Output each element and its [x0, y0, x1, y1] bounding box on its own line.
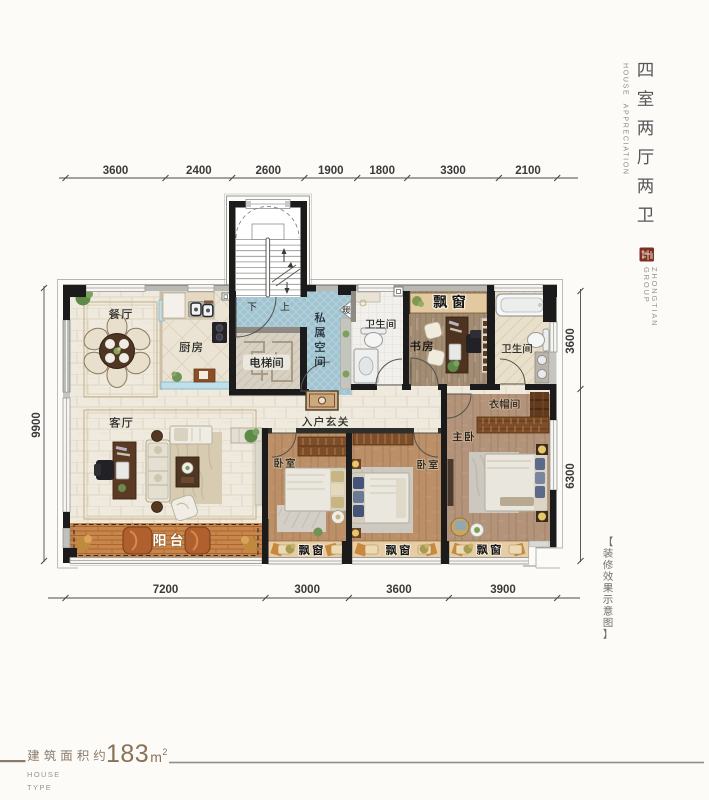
svg-text:2100: 2100	[515, 165, 541, 177]
svg-text:3600: 3600	[565, 328, 577, 354]
svg-text:HOUSE: HOUSE	[27, 770, 61, 779]
svg-text:3300: 3300	[440, 165, 466, 177]
svg-text:TYPE: TYPE	[27, 783, 52, 792]
svg-text:3900: 3900	[490, 584, 516, 596]
svg-text:3000: 3000	[294, 584, 320, 596]
svg-text:9900: 9900	[31, 412, 43, 438]
svg-text:3600: 3600	[103, 165, 129, 177]
svg-text:6300: 6300	[565, 463, 577, 489]
svg-text:1800: 1800	[369, 165, 395, 177]
svg-text:1900: 1900	[318, 165, 344, 177]
svg-text:2600: 2600	[256, 165, 282, 177]
svg-text:GROUP: GROUP	[642, 267, 651, 304]
svg-text:HOUSE APPRECIATION: HOUSE APPRECIATION	[622, 63, 629, 176]
svg-text:3600: 3600	[386, 584, 412, 596]
svg-text:2400: 2400	[186, 165, 212, 177]
svg-text:7200: 7200	[153, 584, 179, 596]
